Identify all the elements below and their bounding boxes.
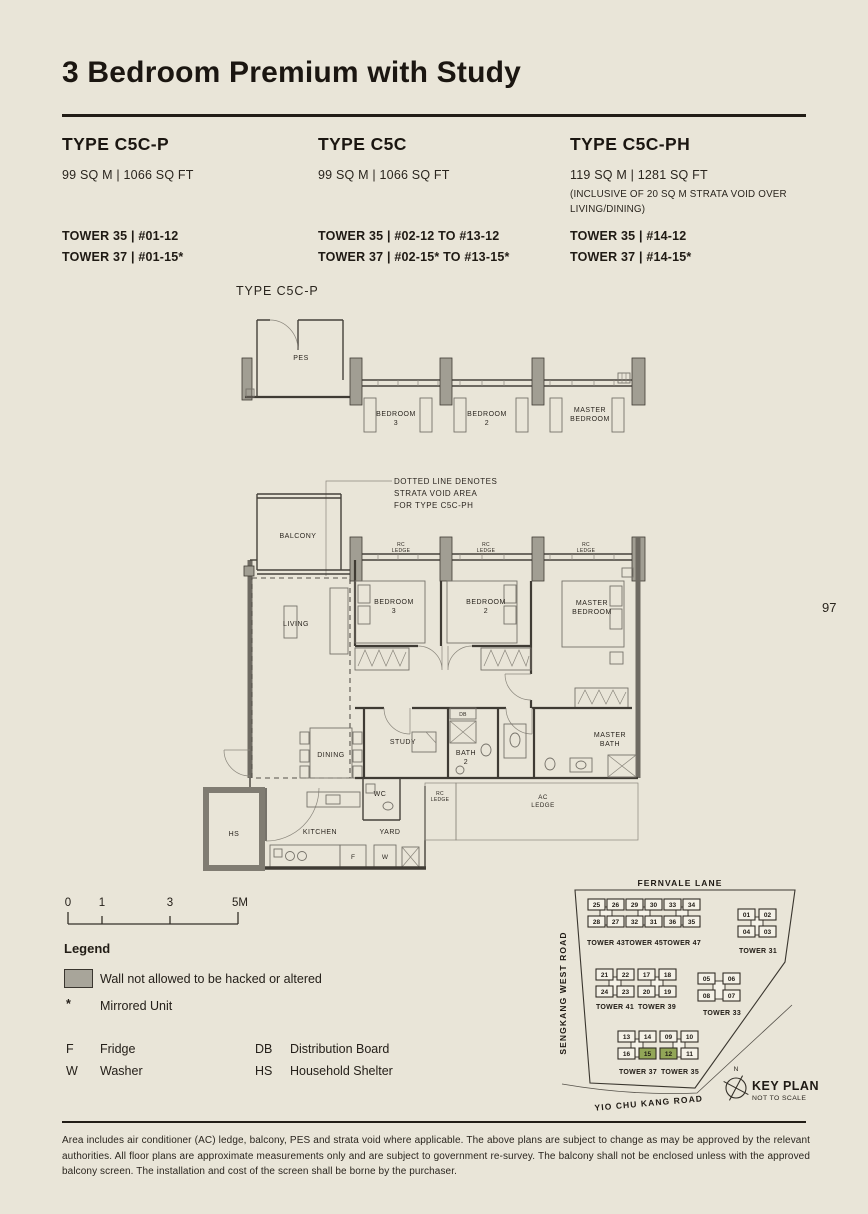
keyplan-unit-number: 22 [622, 972, 630, 979]
room-label-bath2: BATH [456, 750, 476, 757]
keyplan-tower-label: TOWER 45 [625, 940, 663, 947]
unit-type-towers: TOWER 35 | #01-12 TOWER 37 | #01-15* [62, 226, 184, 267]
keyplan-unit-number: 26 [612, 902, 620, 909]
svg-text:STRATA VOID AREA: STRATA VOID AREA [394, 489, 477, 498]
legend-wall-note: Wall not allowed to be hacked or altered [100, 972, 322, 986]
room-label-bedroom2: BEDROOM [467, 411, 507, 418]
compass-north-label: N [734, 1066, 739, 1073]
svg-text:BEDROOM: BEDROOM [374, 599, 414, 606]
room-label-living: LIVING [283, 621, 309, 628]
page-title: 3 Bedroom Premium with Study [62, 56, 521, 90]
svg-text:2: 2 [464, 759, 468, 766]
footer-disclaimer: Area includes air conditioner (AC) ledge… [62, 1133, 810, 1180]
compass-icon: N [717, 1066, 755, 1107]
tower-line: TOWER 35 | #14-12 [570, 226, 692, 247]
room-label-ac-ledge: AC [538, 794, 548, 801]
keyplan-unit-number: 08 [703, 993, 711, 1000]
svg-text:FOR TYPE C5C-PH: FOR TYPE C5C-PH [394, 501, 473, 510]
keyplan-unit-number: 31 [650, 919, 658, 926]
svg-text:DOTTED LINE DENOTES: DOTTED LINE DENOTES [394, 477, 497, 486]
room-label-yard: YARD [380, 829, 401, 836]
keyplan-unit-number: 23 [622, 989, 630, 996]
room-label-pes: PES [293, 355, 309, 362]
keyplan-unit-number: 14 [644, 1034, 652, 1041]
legend-abbr-hs: HS [255, 1064, 272, 1078]
floorplan-pes-strip: PES BEDROOM 3 BEDROOM 2 MASTER BEDROOM [242, 320, 645, 432]
svg-text:MASTER: MASTER [576, 600, 608, 607]
unit-type-name: TYPE C5C-P [62, 134, 314, 155]
floorplan-drawing: PES BEDROOM 3 BEDROOM 2 MASTER BEDROOM [198, 300, 658, 880]
keyplan-unit-number: 01 [743, 912, 751, 919]
legend-abbr-w: W [66, 1064, 78, 1078]
keyplan-tower-label: TOWER 47 [663, 940, 701, 947]
washer-symbol: W [382, 854, 389, 861]
room-label-balcony: BALCONY [280, 533, 317, 540]
svg-text:BEDROOM: BEDROOM [572, 609, 612, 616]
svg-text:2: 2 [484, 608, 488, 615]
footer-divider [62, 1121, 806, 1123]
unit-type-name: TYPE C5C-PH [570, 134, 822, 155]
room-label-bedroom3: BEDROOM [376, 411, 416, 418]
keyplan-unit-number: 10 [686, 1034, 694, 1041]
scale-bar: 0 1 3 5M [60, 894, 250, 930]
keyplan-unit-number: 25 [593, 902, 601, 909]
legend-abbr-db: DB [255, 1042, 272, 1056]
legend-label-hs: Household Shelter [290, 1064, 393, 1078]
unit-type-column-c5c: TYPE C5C 99 SQ M | 1066 SQ FT TOWER 35 |… [318, 134, 570, 188]
svg-text:LEDGE: LEDGE [431, 797, 450, 803]
legend-label-db: Distribution Board [290, 1042, 389, 1056]
keyplan-unit-number: 13 [623, 1034, 631, 1041]
legend-wall-swatch [64, 969, 93, 988]
svg-text:5M: 5M [232, 897, 248, 909]
room-label-wc: WC [374, 791, 387, 798]
keyplan-tower-label: TOWER 33 [703, 1010, 741, 1017]
keyplan-tower-label: TOWER 43 [587, 940, 625, 947]
keyplan-unit-number: 21 [601, 972, 609, 979]
svg-text:LEDGE: LEDGE [477, 548, 496, 554]
room-label-db: DB [459, 712, 467, 718]
keyplan-unit-number: 17 [643, 972, 651, 979]
svg-text:0: 0 [65, 897, 71, 909]
unit-type-area: 99 SQ M | 1066 SQ FT [62, 168, 314, 182]
keyplan-unit-number: 29 [631, 902, 639, 909]
keyplan-unit-number: 20 [643, 989, 651, 996]
svg-text:2: 2 [485, 420, 489, 427]
page-number: 97 [822, 600, 836, 615]
svg-text:LEDGE: LEDGE [392, 548, 411, 554]
svg-text:3: 3 [167, 897, 173, 909]
unit-type-area: 119 SQ M | 1281 SQ FT [570, 168, 822, 182]
keyplan-unit-number: 27 [612, 919, 620, 926]
keyplan-unit-number: 32 [631, 919, 639, 926]
title-underline [62, 114, 806, 117]
keyplan-unit-number: 30 [650, 902, 658, 909]
unit-type-towers: TOWER 35 | #02-12 TO #13-12 TOWER 37 | #… [318, 226, 510, 267]
svg-text:BATH: BATH [600, 741, 620, 748]
keyplan-unit-number: 19 [664, 989, 672, 996]
svg-text:3: 3 [392, 608, 396, 615]
legend-mirror-note: Mirrored Unit [100, 999, 172, 1013]
keyplan-unit-number: 35 [688, 919, 696, 926]
floorplan-main: BALCONY RC LEDGE RC LEDGE RC LEDGE [206, 494, 645, 868]
tower-line: TOWER 35 | #02-12 TO #13-12 [318, 226, 510, 247]
room-label-master-bath: MASTER [594, 732, 626, 739]
room-label-master-bedroom: MASTER [574, 407, 606, 414]
legend-label-fridge: Fridge [100, 1042, 135, 1056]
keyplan-tower-label: TOWER 41 [596, 1004, 634, 1011]
keyplan-tower-label: TOWER 37 [619, 1069, 657, 1076]
room-label-kitchen: KITCHEN [303, 829, 337, 836]
keyplan-unit-number: 03 [764, 929, 772, 936]
tower-line: TOWER 35 | #01-12 [62, 226, 184, 247]
legend-abbr-f: F [66, 1042, 74, 1056]
floorplan-type-label: TYPE C5C-P [236, 284, 319, 298]
key-plan: FERNVALE LANE SENGKANG WEST ROAD YIO CHU… [552, 870, 862, 1115]
keyplan-unit-number: 18 [664, 972, 672, 979]
svg-text:1: 1 [99, 897, 105, 909]
room-label-hs: HS [229, 831, 240, 838]
legend-label-washer: Washer [100, 1064, 143, 1078]
keyplan-tower-label: TOWER 31 [739, 948, 777, 955]
keyplan-unit-number: 33 [669, 902, 677, 909]
keyplan-unit-number: 15 [644, 1051, 652, 1058]
unit-type-towers: TOWER 35 | #14-12 TOWER 37 | #14-15* [570, 226, 692, 267]
unit-type-column-c5c-p: TYPE C5C-P 99 SQ M | 1066 SQ FT TOWER 35… [62, 134, 314, 188]
keyplan-clusters: 252629303334282732313635TOWER 43TOWER 45… [587, 899, 777, 1076]
keyplan-subtitle: NOT TO SCALE [752, 1095, 806, 1102]
tower-line: TOWER 37 | #02-15* TO #13-15* [318, 247, 510, 268]
keyplan-unit-number: 06 [728, 976, 736, 983]
keyplan-unit-number: 05 [703, 976, 711, 983]
keyplan-tower-label: TOWER 35 [661, 1069, 699, 1076]
fridge-symbol: F [351, 854, 355, 861]
keyplan-unit-number: 02 [764, 912, 772, 919]
svg-text:LEDGE: LEDGE [577, 548, 596, 554]
keyplan-unit-number: 28 [593, 919, 601, 926]
unit-type-note: (INCLUSIVE OF 20 SQ M STRATA VOID OVER L… [570, 188, 788, 217]
unit-type-name: TYPE C5C [318, 134, 570, 155]
svg-text:BEDROOM: BEDROOM [570, 416, 610, 423]
keyplan-unit-number: 12 [665, 1051, 673, 1058]
keyplan-unit-number: 07 [728, 993, 736, 1000]
svg-text:BEDROOM: BEDROOM [466, 599, 506, 606]
keyplan-unit-number: 34 [688, 902, 696, 909]
keyplan-unit-number: 16 [623, 1051, 631, 1058]
keyplan-tower-label: TOWER 39 [638, 1004, 676, 1011]
tower-line: TOWER 37 | #14-15* [570, 247, 692, 268]
road-label-sengkang-west: SENGKANG WEST ROAD [558, 931, 568, 1054]
legend-mirror-symbol: * [66, 997, 71, 1011]
unit-type-column-c5c-ph: TYPE C5C-PH 119 SQ M | 1281 SQ FT (INCLU… [570, 134, 822, 217]
road-label-fernvale-lane: FERNVALE LANE [638, 878, 723, 888]
tower-line: TOWER 37 | #01-15* [62, 247, 184, 268]
keyplan-unit-number: 11 [686, 1051, 693, 1058]
keyplan-unit-number: 24 [601, 989, 609, 996]
room-label-dining: DINING [317, 752, 345, 759]
legend-title: Legend [64, 941, 110, 956]
svg-text:LEDGE: LEDGE [531, 802, 554, 809]
svg-text:3: 3 [394, 420, 398, 427]
keyplan-unit-number: 04 [743, 929, 751, 936]
road-label-yio-chu-kang: YIO CHU KANG ROAD [594, 1093, 703, 1112]
unit-type-area: 99 SQ M | 1066 SQ FT [318, 168, 570, 182]
keyplan-unit-number: 09 [665, 1034, 673, 1041]
keyplan-title: KEY PLAN [752, 1079, 819, 1093]
keyplan-unit-number: 36 [669, 919, 677, 926]
brochure-page: 3 Bedroom Premium with Study TYPE C5C-P … [0, 0, 868, 1214]
